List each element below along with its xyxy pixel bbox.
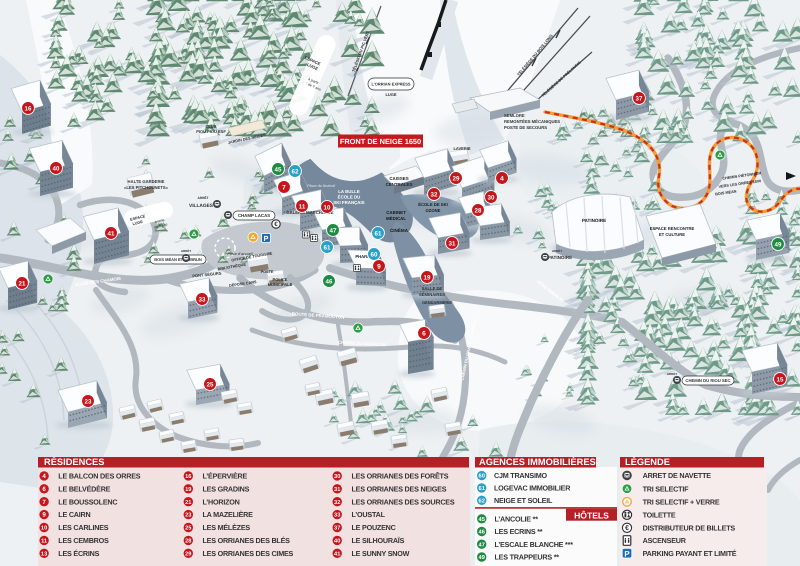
- svg-text:6: 6: [422, 330, 426, 337]
- svg-text:L’ESCALE BLANCHE ***: L’ESCALE BLANCHE ***: [495, 540, 574, 549]
- svg-text:LES CARLINES: LES CARLINES: [58, 523, 108, 532]
- svg-text:ARRÊT: ARRÊT: [667, 372, 678, 376]
- svg-text:GENDARMERIE: GENDARMERIE: [422, 300, 452, 305]
- svg-text:LE CAIRN: LE CAIRN: [58, 510, 90, 519]
- svg-text:LES GRADINS: LES GRADINS: [203, 484, 250, 493]
- svg-text:SÉMINAIRES: SÉMINAIRES: [419, 292, 445, 297]
- svg-text:45: 45: [479, 517, 485, 523]
- svg-text:6: 6: [42, 486, 46, 493]
- svg-text:25: 25: [185, 526, 191, 532]
- svg-text:19: 19: [185, 487, 191, 493]
- svg-text:4: 4: [42, 473, 46, 480]
- svg-text:11: 11: [41, 539, 47, 545]
- svg-text:CENTRALES: CENTRALES: [386, 182, 413, 187]
- svg-text:CINÉMA: CINÉMA: [390, 227, 409, 233]
- svg-text:BOIS MÉAN ET EMBRUN: BOIS MÉAN ET EMBRUN: [154, 257, 202, 262]
- svg-text:29: 29: [185, 551, 191, 557]
- svg-text:31: 31: [449, 240, 456, 247]
- svg-text:LAVERIE: LAVERIE: [453, 146, 470, 151]
- svg-text:L’OUSTAL: L’OUSTAL: [352, 510, 386, 519]
- svg-text:LES ORRIANES DES BLÉS: LES ORRIANES DES BLÉS: [203, 536, 291, 545]
- svg-text:ARRÊT: ARRÊT: [198, 196, 209, 200]
- svg-text:«LES PITCHOUNETS»: «LES PITCHOUNETS»: [124, 185, 169, 190]
- svg-text:NEIGE ET SOLEIL: NEIGE ET SOLEIL: [494, 496, 553, 505]
- svg-text:16: 16: [25, 105, 32, 112]
- svg-text:LÉGENDE: LÉGENDE: [625, 456, 670, 467]
- svg-text:LES ÉCRINS: LES ÉCRINS: [58, 549, 99, 558]
- svg-text:PATINOIRE: PATINOIRE: [548, 255, 572, 260]
- svg-text:POSTE DE SECOURS: POSTE DE SECOURS: [504, 125, 547, 130]
- svg-text:TOILETTE: TOILETTE: [643, 510, 676, 519]
- svg-text:28: 28: [185, 539, 191, 545]
- svg-text:RÉSIDENCES: RÉSIDENCES: [44, 456, 104, 467]
- svg-text:62: 62: [292, 168, 299, 175]
- svg-text:SKI FRANÇAIS: SKI FRANÇAIS: [333, 200, 364, 205]
- svg-text:33: 33: [334, 513, 340, 519]
- svg-text:ARRÊT: ARRÊT: [181, 249, 192, 253]
- svg-text:LES MÉLÈZES: LES MÉLÈZES: [203, 523, 251, 532]
- svg-text:€: €: [625, 525, 629, 532]
- svg-text:FRONT DE NEIGE 1650: FRONT DE NEIGE 1650: [340, 137, 421, 146]
- svg-text:40: 40: [53, 165, 60, 172]
- svg-text:49: 49: [479, 555, 485, 561]
- svg-text:REMONTÉES MÉCANIQUES: REMONTÉES MÉCANIQUES: [504, 119, 560, 124]
- svg-text:LE SUNNY SNOW: LE SUNNY SNOW: [352, 549, 410, 558]
- svg-text:ÉCOLE DE SKI: ÉCOLE DE SKI: [418, 202, 448, 207]
- svg-text:30: 30: [488, 194, 495, 201]
- svg-text:TRI SELECTIF: TRI SELECTIF: [643, 484, 690, 493]
- svg-text:21: 21: [185, 500, 191, 506]
- svg-text:7: 7: [42, 499, 46, 506]
- svg-text:LA BULLE: LA BULLE: [338, 189, 360, 194]
- svg-text:LUGE: LUGE: [385, 92, 396, 97]
- svg-text:CHEMIN DU RIOU SEC: CHEMIN DU RIOU SEC: [685, 378, 730, 383]
- svg-text:ET CULTURE: ET CULTURE: [659, 232, 685, 237]
- svg-text:46: 46: [326, 278, 333, 285]
- svg-text:LES ORRIANES DES CIMES: LES ORRIANES DES CIMES: [203, 549, 294, 558]
- svg-text:61: 61: [324, 244, 331, 251]
- svg-text:CAISSES: CAISSES: [389, 176, 408, 181]
- svg-text:60: 60: [371, 251, 378, 258]
- svg-text:23: 23: [185, 513, 191, 519]
- svg-text:AGENCES IMMOBILIÈRES: AGENCES IMMOBILIÈRES: [479, 456, 596, 467]
- svg-text:32: 32: [334, 500, 340, 506]
- svg-text:PIOU PIOU ESF: PIOU PIOU ESF: [196, 129, 226, 134]
- svg-text:62: 62: [479, 498, 485, 504]
- svg-text:SALLE DE: SALLE DE: [422, 286, 443, 291]
- svg-text:46: 46: [479, 530, 485, 536]
- svg-text:32: 32: [431, 191, 438, 198]
- svg-text:47: 47: [479, 542, 485, 548]
- svg-text:DISTRIBUTEUR DE BILLETS: DISTRIBUTEUR DE BILLETS: [643, 523, 736, 532]
- svg-text:37: 37: [636, 95, 643, 102]
- svg-text:49: 49: [775, 241, 782, 248]
- svg-text:MUNICIPALE: MUNICIPALE: [268, 282, 293, 287]
- svg-text:HÔTELS: HÔTELS: [574, 511, 609, 521]
- svg-text:LOGEVAC IMMOBILIER: LOGEVAC IMMOBILIER: [494, 484, 571, 493]
- svg-text:€: €: [274, 221, 278, 228]
- svg-text:HALTE GARDERIE: HALTE GARDERIE: [128, 179, 165, 184]
- svg-text:61: 61: [479, 486, 485, 492]
- svg-text:OZONE: OZONE: [426, 208, 441, 213]
- svg-text:LES ECRINS **: LES ECRINS **: [495, 527, 543, 536]
- svg-text:25: 25: [207, 381, 214, 388]
- svg-text:LES ORRIANES DES NEIGES: LES ORRIANES DES NEIGES: [352, 484, 447, 493]
- svg-text:P: P: [624, 549, 629, 558]
- svg-text:45: 45: [275, 166, 282, 173]
- svg-text:ESPACE RENCONTRE: ESPACE RENCONTRE: [650, 226, 695, 231]
- svg-text:10: 10: [324, 204, 331, 211]
- svg-text:LE BALCON DES ORRES: LE BALCON DES ORRES: [58, 472, 141, 481]
- svg-text:10: 10: [41, 526, 47, 532]
- svg-text:MÉDICAL: MÉDICAL: [386, 216, 406, 221]
- svg-text:19: 19: [424, 274, 431, 281]
- svg-text:LE BOUSSOLENC: LE BOUSSOLENC: [58, 497, 117, 506]
- svg-text:LES ORRIANES DES SOURCES: LES ORRIANES DES SOURCES: [352, 497, 455, 506]
- svg-text:7: 7: [282, 184, 286, 191]
- svg-text:41: 41: [334, 551, 340, 557]
- svg-text:CABINET: CABINET: [386, 210, 406, 215]
- svg-text:9: 9: [377, 263, 381, 270]
- svg-text:CJM TRANSIMO: CJM TRANSIMO: [494, 471, 547, 480]
- svg-text:L’HORIZON: L’HORIZON: [203, 497, 240, 506]
- svg-text:9: 9: [42, 512, 46, 519]
- svg-text:21: 21: [19, 280, 26, 287]
- svg-text:L’ÉPERVIÈRE: L’ÉPERVIÈRE: [203, 472, 248, 481]
- svg-text:L’ANCOLIE **: L’ANCOLIE **: [495, 514, 539, 523]
- svg-text:LE POUZENC: LE POUZENC: [352, 523, 396, 532]
- svg-text:PATINOIRE: PATINOIRE: [582, 218, 606, 223]
- svg-text:POSTE: POSTE: [261, 270, 274, 274]
- svg-text:11: 11: [299, 203, 306, 210]
- svg-text:SEMLORE: SEMLORE: [504, 113, 525, 118]
- svg-text:ASCENSEUR: ASCENSEUR: [643, 536, 687, 545]
- svg-text:Place d’accueil: Place d’accueil: [227, 252, 252, 256]
- svg-text:TRI SELECTIF + VERRE: TRI SELECTIF + VERRE: [643, 497, 720, 506]
- svg-text:ARRÊT: ARRÊT: [552, 249, 563, 253]
- svg-text:47: 47: [330, 227, 337, 234]
- svg-text:LES ORRIANES DES FORÊTS: LES ORRIANES DES FORÊTS: [352, 472, 449, 481]
- svg-text:13: 13: [41, 551, 47, 557]
- svg-text:LES CEMBROS: LES CEMBROS: [58, 536, 109, 545]
- svg-text:29: 29: [453, 175, 460, 182]
- svg-text:23: 23: [85, 398, 92, 405]
- svg-text:LA MAZELIÈRE: LA MAZELIÈRE: [203, 510, 254, 519]
- svg-text:15: 15: [777, 376, 784, 383]
- svg-text:61: 61: [375, 230, 382, 237]
- svg-text:VILLAGES: VILLAGES: [189, 203, 214, 209]
- svg-text:LE BELVÉDÈRE: LE BELVÉDÈRE: [58, 484, 110, 493]
- svg-text:ARRET DE NAVETTE: ARRET DE NAVETTE: [643, 471, 712, 480]
- svg-text:37: 37: [334, 526, 340, 532]
- svg-text:LE SILHOURAÏS: LE SILHOURAÏS: [352, 536, 405, 545]
- svg-text:PARKING PAYANT ET LIMITÉ: PARKING PAYANT ET LIMITÉ: [643, 549, 737, 558]
- svg-text:16: 16: [185, 474, 191, 480]
- svg-text:30: 30: [334, 474, 340, 480]
- svg-text:Place du festival: Place du festival: [307, 184, 335, 188]
- svg-text:60: 60: [479, 474, 485, 480]
- svg-text:4: 4: [500, 175, 504, 182]
- svg-text:40: 40: [334, 539, 340, 545]
- svg-text:41: 41: [108, 230, 115, 237]
- svg-text:LES TRAPPEURS **: LES TRAPPEURS **: [495, 553, 560, 562]
- svg-text:31: 31: [334, 487, 340, 493]
- svg-text:ÉCOLE DU: ÉCOLE DU: [338, 195, 361, 200]
- svg-text:33: 33: [199, 296, 206, 303]
- svg-text:L’ORRIAN EXPRESS: L’ORRIAN EXPRESS: [371, 81, 410, 86]
- svg-text:28: 28: [475, 207, 482, 214]
- svg-text:P: P: [264, 234, 269, 243]
- svg-text:CHAMP LACAS: CHAMP LACAS: [238, 213, 270, 218]
